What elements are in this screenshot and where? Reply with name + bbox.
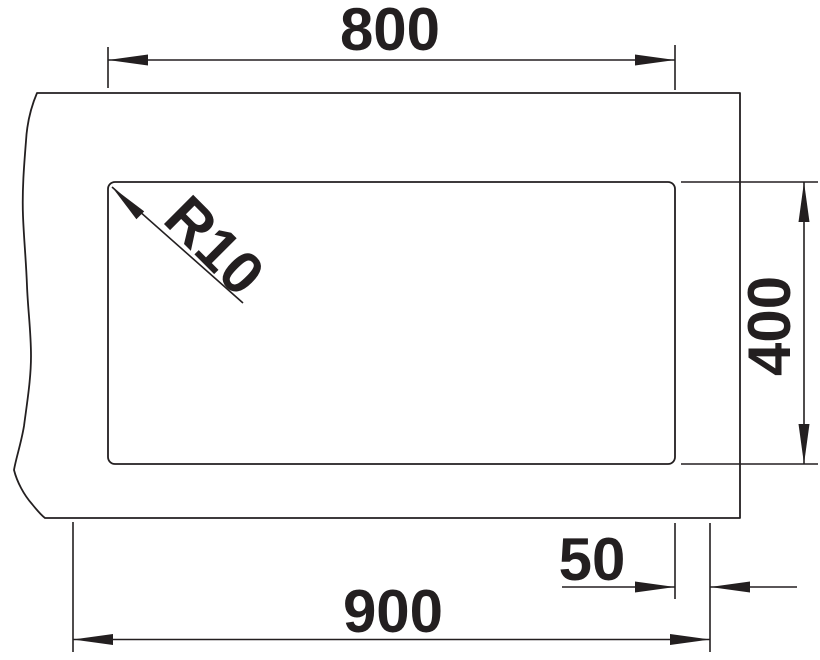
radius-callout: R10 xyxy=(112,183,277,308)
drawing-svg: 800 400 900 50 xyxy=(0,0,820,660)
arrowhead-down-icon xyxy=(799,424,810,464)
dim-label-overall-width: 900 xyxy=(343,578,443,645)
installation-drawing: 800 400 900 50 xyxy=(0,0,820,660)
countertop-outline xyxy=(14,93,740,518)
arrowhead-up-icon xyxy=(799,182,810,222)
dimension-cutout-height: 400 xyxy=(681,182,818,464)
arrowhead-left-icon xyxy=(108,55,148,66)
arrowhead-right-icon xyxy=(635,55,675,66)
arrowhead-corner-icon xyxy=(112,187,144,219)
arrowhead-right-icon xyxy=(635,582,675,593)
arrowhead-right-icon xyxy=(670,634,710,645)
dimension-side-offset: 50 xyxy=(559,523,797,599)
arrowhead-left-icon xyxy=(73,634,113,645)
dim-label-corner-radius: R10 xyxy=(152,183,277,308)
dim-label-side-offset: 50 xyxy=(559,526,626,593)
arrowhead-left-icon xyxy=(710,582,750,593)
dim-label-cutout-height: 400 xyxy=(736,276,803,376)
dimension-cutout-width: 800 xyxy=(108,0,675,90)
dim-label-cutout-width: 800 xyxy=(340,0,440,63)
